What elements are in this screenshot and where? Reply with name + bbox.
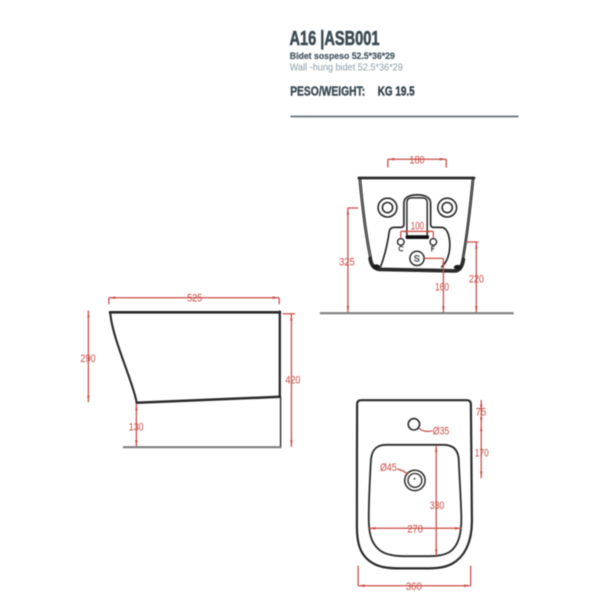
svg-text:KG 19.5: KG 19.5: [378, 84, 415, 98]
svg-text:Ø45: Ø45: [380, 462, 397, 474]
svg-text:75: 75: [476, 407, 487, 419]
svg-text:290: 290: [80, 353, 95, 365]
svg-text:220: 220: [469, 274, 484, 286]
svg-text:100: 100: [411, 221, 425, 233]
svg-text:130: 130: [129, 421, 144, 433]
svg-text:360: 360: [406, 581, 422, 593]
svg-text:Bidet sospeso 52.5*36*29: Bidet sospeso 52.5*36*29: [290, 51, 395, 62]
svg-text:325: 325: [339, 257, 355, 269]
svg-text:Wall -hung bidet 52.5*36*29: Wall -hung bidet 52.5*36*29: [290, 63, 403, 74]
svg-text:180: 180: [409, 154, 424, 166]
svg-text:Ø35: Ø35: [433, 426, 450, 438]
svg-text:PESO/WEIGHT:: PESO/WEIGHT:: [290, 84, 365, 98]
svg-text:525: 525: [187, 293, 202, 305]
svg-text:330: 330: [430, 500, 445, 512]
svg-text:170: 170: [475, 447, 489, 459]
svg-text:A16 |ASB001: A16 |ASB001: [290, 28, 380, 50]
svg-text:160: 160: [435, 281, 449, 293]
svg-text:270: 270: [407, 523, 423, 535]
svg-text:420: 420: [285, 374, 300, 386]
